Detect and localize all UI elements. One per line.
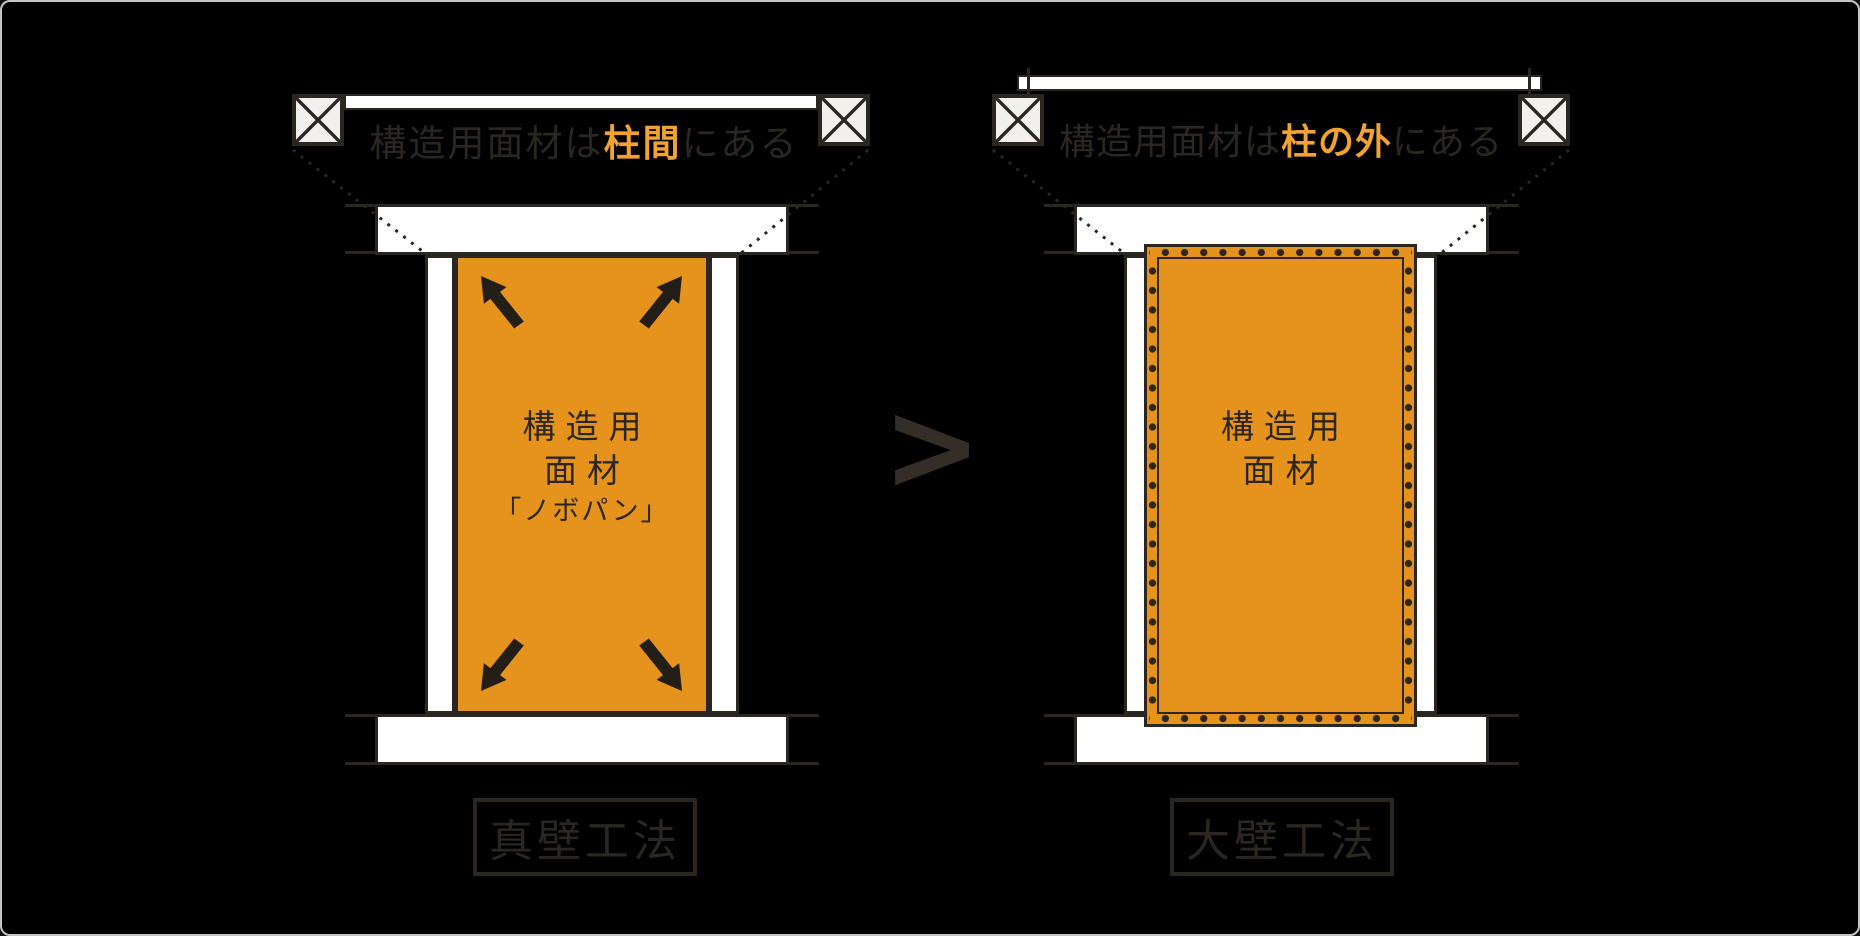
left-title-prefix: 構造用面材は xyxy=(370,122,604,165)
right-panel-label-line2: 面材 xyxy=(1144,454,1417,487)
left-panel-label-line2: 面材 xyxy=(455,454,709,487)
beam-edge-line xyxy=(789,762,819,765)
left-plan-post-right-icon xyxy=(818,94,870,146)
left-caption-box: 真壁工法 xyxy=(473,798,697,876)
right-plan-panel-bar xyxy=(1017,75,1542,91)
right-panel-label-line1: 構造用 xyxy=(1144,410,1417,443)
x-brace-icon xyxy=(296,98,340,142)
expand-arrow-up-left-icon xyxy=(479,273,527,331)
right-caption-box: 大壁工法 xyxy=(1170,798,1394,876)
beam-edge-line xyxy=(1044,204,1074,207)
right-panel-label: 構造用 面材 xyxy=(1144,410,1417,498)
right-caption: 大壁工法 xyxy=(1186,805,1378,869)
beam-edge-line xyxy=(1044,251,1074,254)
right-plan-post-left-icon xyxy=(992,94,1044,146)
expand-arrow-down-left-icon xyxy=(479,636,527,694)
left-bottom-beam xyxy=(375,714,789,765)
beam-edge-line xyxy=(1489,204,1519,207)
beam-edge-line xyxy=(345,762,375,765)
beam-edge-line xyxy=(789,714,819,717)
left-plan-panel-bar xyxy=(344,94,818,110)
left-caption: 真壁工法 xyxy=(489,805,681,869)
expand-arrow-up-right-icon xyxy=(636,273,684,331)
x-brace-icon xyxy=(822,98,866,142)
greater-than-icon: > xyxy=(882,398,982,495)
left-title-highlight: 柱間 xyxy=(604,122,682,165)
left-title: 構造用面材は柱間にある xyxy=(349,113,819,167)
right-title-suffix: にある xyxy=(1392,122,1503,163)
left-title-suffix: にある xyxy=(682,122,799,165)
left-plan-post-left-icon xyxy=(292,94,344,146)
right-title-highlight: 柱の外 xyxy=(1281,122,1392,163)
beam-edge-line xyxy=(1044,762,1074,765)
nail-dots-top xyxy=(1149,247,1412,258)
right-title-prefix: 構造用面材は xyxy=(1059,122,1281,163)
left-column-left xyxy=(425,255,455,714)
right-plan-post-right-icon xyxy=(1518,94,1570,146)
right-title: 構造用面材は柱の外にある xyxy=(1046,113,1516,165)
construction-method-comparison-diagram: 構造用面材は柱間にある 構造用 面材 「ノボパン」 真壁工法 > xyxy=(0,0,1860,936)
beam-edge-line xyxy=(1044,714,1074,717)
nail-dots-bottom xyxy=(1149,713,1412,724)
left-panel-label-line3: 「ノボパン」 xyxy=(455,498,709,525)
beam-edge-line xyxy=(1489,714,1519,717)
beam-edge-line xyxy=(789,204,819,207)
left-column-right xyxy=(709,255,739,714)
x-brace-icon xyxy=(996,98,1040,142)
x-brace-icon xyxy=(1522,98,1566,142)
expand-arrow-down-right-icon xyxy=(636,636,684,694)
beam-edge-line xyxy=(345,204,375,207)
left-panel-label-line1: 構造用 xyxy=(455,410,709,443)
beam-edge-line xyxy=(789,251,819,254)
left-panel-label: 構造用 面材 「ノボパン」 xyxy=(455,410,709,525)
left-top-beam xyxy=(375,204,789,255)
beam-edge-line xyxy=(1489,762,1519,765)
beam-edge-line xyxy=(345,251,375,254)
beam-edge-line xyxy=(345,714,375,717)
beam-edge-line xyxy=(1489,251,1519,254)
